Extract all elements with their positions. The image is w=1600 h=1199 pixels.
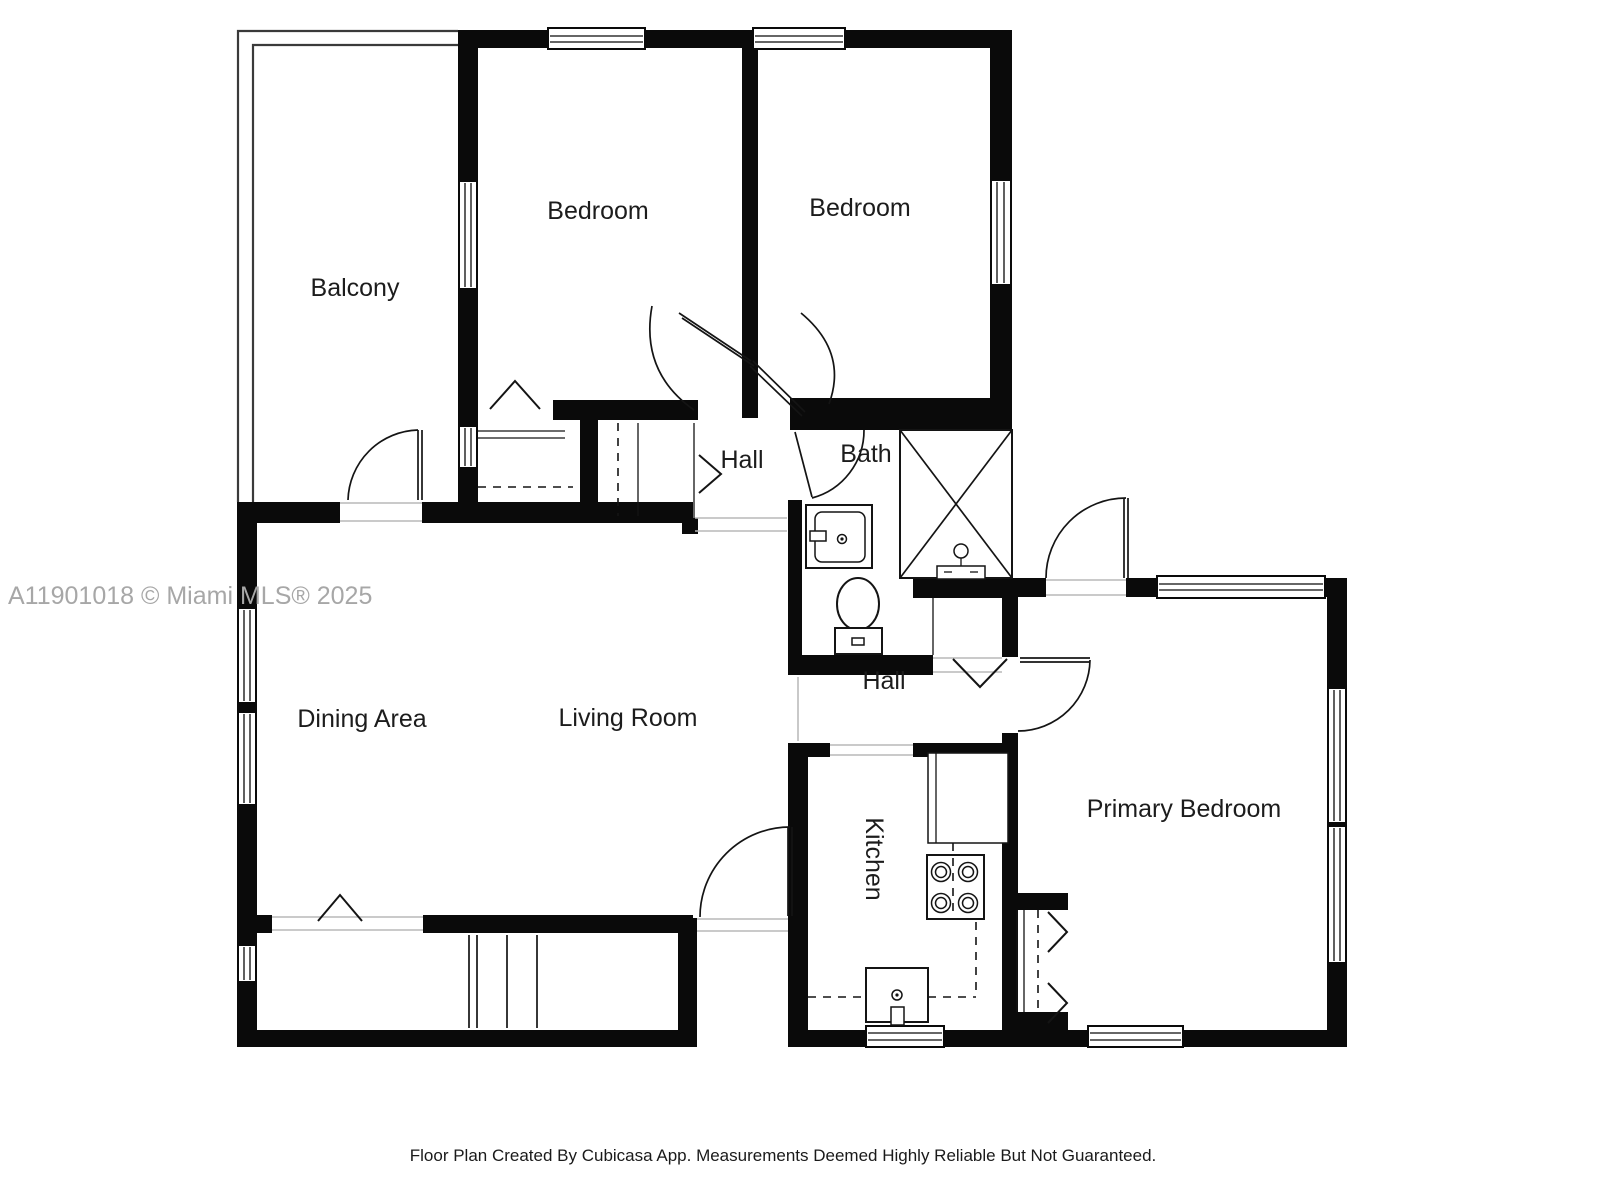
balcony-door [348,430,422,500]
floor-plan-page: Balcony Bedroom Bedroom Hall Bath Hall D… [0,0,1600,1199]
bath-sink [806,505,872,568]
hall-closet-chevron [699,455,721,493]
footer-disclaimer: Floor Plan Created By Cubicasa App. Meas… [410,1146,1157,1165]
room-label-dining: Dining Area [297,705,426,733]
room-label-balcony: Balcony [311,274,400,302]
kitchen-fixtures [808,753,1008,1025]
room-label-hall-lower: Hall [862,667,905,695]
mls-watermark: A11901018 © Miami MLS® 2025 [8,582,372,610]
hall-niche-chevron [953,659,1007,687]
room-label-kitchen: Kitchen [860,817,888,900]
primary-exterior-door [1046,498,1128,578]
floor-plan-canvas: Balcony Bedroom Bedroom Hall Bath Hall D… [0,0,1600,1199]
primary-closet-chevron-top [1048,912,1067,952]
toilet [835,578,882,654]
shower [900,430,1012,579]
front-door [700,827,792,917]
kitchen-sink [866,968,928,1025]
room-label-hall-upper: Hall [720,446,763,474]
primary-bedroom-door [1018,658,1090,731]
bath-fixtures [806,430,1012,654]
room-label-living: Living Room [559,704,698,732]
stove [927,855,984,919]
room-label-bath: Bath [840,440,891,468]
room-label-primary: Primary Bedroom [1087,795,1282,823]
room-label-bedroom-right: Bedroom [809,194,910,222]
kitchen-counter [928,753,1008,843]
balcony-outline [238,31,458,502]
room-label-bedroom-left: Bedroom [547,197,648,225]
